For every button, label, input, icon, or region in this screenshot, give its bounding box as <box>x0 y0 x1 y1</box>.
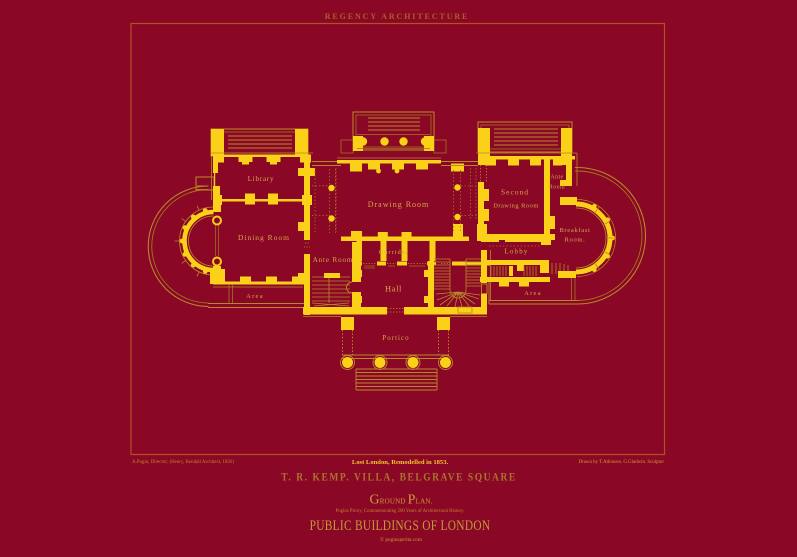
svg-text:© puginsperita.com: © puginsperita.com <box>380 536 423 543</box>
svg-text:A.Pugin, Director; (Henry, Ken: A.Pugin, Director; (Henry, Kendall Archi… <box>132 460 234 465</box>
svg-text:Room.: Room. <box>564 237 585 244</box>
svg-text:Room: Room <box>549 185 565 191</box>
svg-text:Lost London, Remodelled in 185: Lost London, Remodelled in 1853. <box>352 459 449 466</box>
svg-text:Drawing Room: Drawing Room <box>368 200 430 209</box>
svg-text:REGENCY ARCHITECTURE: REGENCY ARCHITECTURE <box>325 12 470 21</box>
svg-text:Ante: Ante <box>550 175 563 181</box>
svg-text:Second: Second <box>501 188 529 197</box>
svg-text:Area: Area <box>524 290 542 297</box>
svg-text:Pugins Priory, Commemorating 2: Pugins Priory, Commemorating 200 Years o… <box>336 509 465 514</box>
svg-text:Dining Room: Dining Room <box>238 233 290 242</box>
svg-text:Drawing Room: Drawing Room <box>493 203 539 210</box>
svg-text:PUBLIC BUILDINGS OF LONDON: PUBLIC BUILDINGS OF LONDON <box>310 516 491 533</box>
svg-text:Area: Area <box>246 293 264 300</box>
svg-text:T. R. KEMP. VILLA, BELGRAVE SQ: T. R. KEMP. VILLA, BELGRAVE SQUARE <box>281 472 516 484</box>
svg-text:Breakfast: Breakfast <box>559 227 590 234</box>
svg-text:Lobby: Lobby <box>504 248 528 256</box>
svg-text:Ante Room: Ante Room <box>313 256 354 264</box>
svg-text:Drawn by T.Atkinson. G.Gladwin: Drawn by T.Atkinson. G.Gladwin. Sculptor <box>579 460 665 465</box>
svg-text:Corridor: Corridor <box>379 249 409 256</box>
svg-text:Library: Library <box>248 175 275 183</box>
svg-text:Hall: Hall <box>385 284 402 294</box>
svg-text:Portico: Portico <box>382 334 409 342</box>
